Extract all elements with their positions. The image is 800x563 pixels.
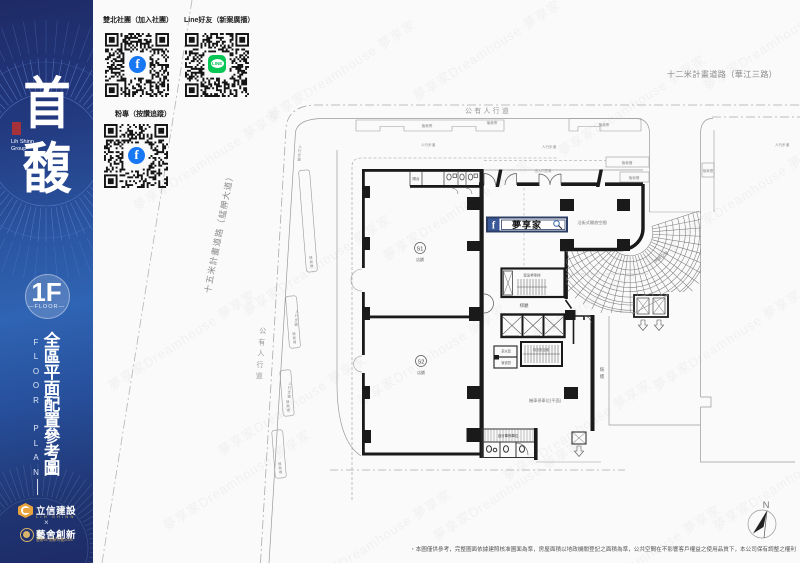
svg-text:植栽槽: 植栽槽 <box>629 175 640 180</box>
svg-text:植栽槽: 植栽槽 <box>622 160 633 165</box>
svg-text:・本圖僅供參考，完整圖面依據建照核准圖面為準，房屋面積以地政: ・本圖僅供參考，完整圖面依據建照核准圖面為準，房屋面積以地政機關登記之面積為準，… <box>410 545 796 553</box>
svg-text:沿街式開放空間: 沿街式開放空間 <box>577 219 606 226</box>
svg-text:十二米計畫道路（華江三路）: 十二米計畫道路（華江三路） <box>667 69 777 79</box>
svg-text:緊急昇降梯: 緊急昇降梯 <box>524 273 542 278</box>
svg-text:人行步道: 人行步道 <box>421 142 436 147</box>
svg-text:植栽槽: 植栽槽 <box>703 168 714 173</box>
svg-text:植栽帶: 植栽帶 <box>599 122 610 127</box>
svg-text:槽: 槽 <box>279 469 283 474</box>
svg-text:道: 道 <box>294 322 298 327</box>
svg-text:道: 道 <box>256 371 263 380</box>
svg-text:店鋪: 店鋪 <box>416 257 424 262</box>
svg-text:植栽帶: 植栽帶 <box>487 120 498 125</box>
svg-text:茶水間: 茶水間 <box>501 349 511 354</box>
svg-text:陽台: 陽台 <box>412 176 420 181</box>
svg-text:槽: 槽 <box>293 339 297 344</box>
svg-text:人: 人 <box>257 350 264 358</box>
svg-text:S1: S1 <box>417 247 424 253</box>
svg-text:人行步道: 人行步道 <box>542 144 557 149</box>
svg-text:道: 道 <box>297 157 301 162</box>
svg-text:道: 道 <box>287 394 291 399</box>
svg-text:N: N <box>763 500 770 511</box>
svg-text:十五米計畫道路（艋舺大道）: 十五米計畫道路（艋舺大道） <box>202 171 235 294</box>
svg-text:樓: 樓 <box>600 373 605 380</box>
svg-text:S2: S2 <box>418 360 425 366</box>
svg-text:夢享家: 夢享家 <box>512 219 542 230</box>
svg-text:特別安全梯: 特別安全梯 <box>533 347 550 352</box>
svg-text:出入口意象: 出入口意象 <box>535 168 553 173</box>
svg-text:行: 行 <box>257 360 264 369</box>
svg-text:騎: 騎 <box>600 366 605 373</box>
svg-text:梯廳: 梯廳 <box>520 302 529 309</box>
svg-text:槽: 槽 <box>286 407 290 412</box>
svg-text:公: 公 <box>259 327 266 335</box>
svg-text:植栽帶: 植栽帶 <box>422 123 433 128</box>
svg-text:機車停車位(平面): 機車停車位(平面) <box>529 397 562 404</box>
svg-text:有: 有 <box>258 337 265 346</box>
svg-text:店鋪: 店鋪 <box>417 370 425 375</box>
svg-text:槽: 槽 <box>310 263 314 268</box>
svg-text:人行步道: 人行步道 <box>775 142 790 147</box>
svg-text:自行車停車位: 自行車停車位 <box>498 433 519 438</box>
svg-text:管道間: 管道間 <box>501 360 511 365</box>
svg-text:公有人行道: 公有人行道 <box>465 106 511 115</box>
